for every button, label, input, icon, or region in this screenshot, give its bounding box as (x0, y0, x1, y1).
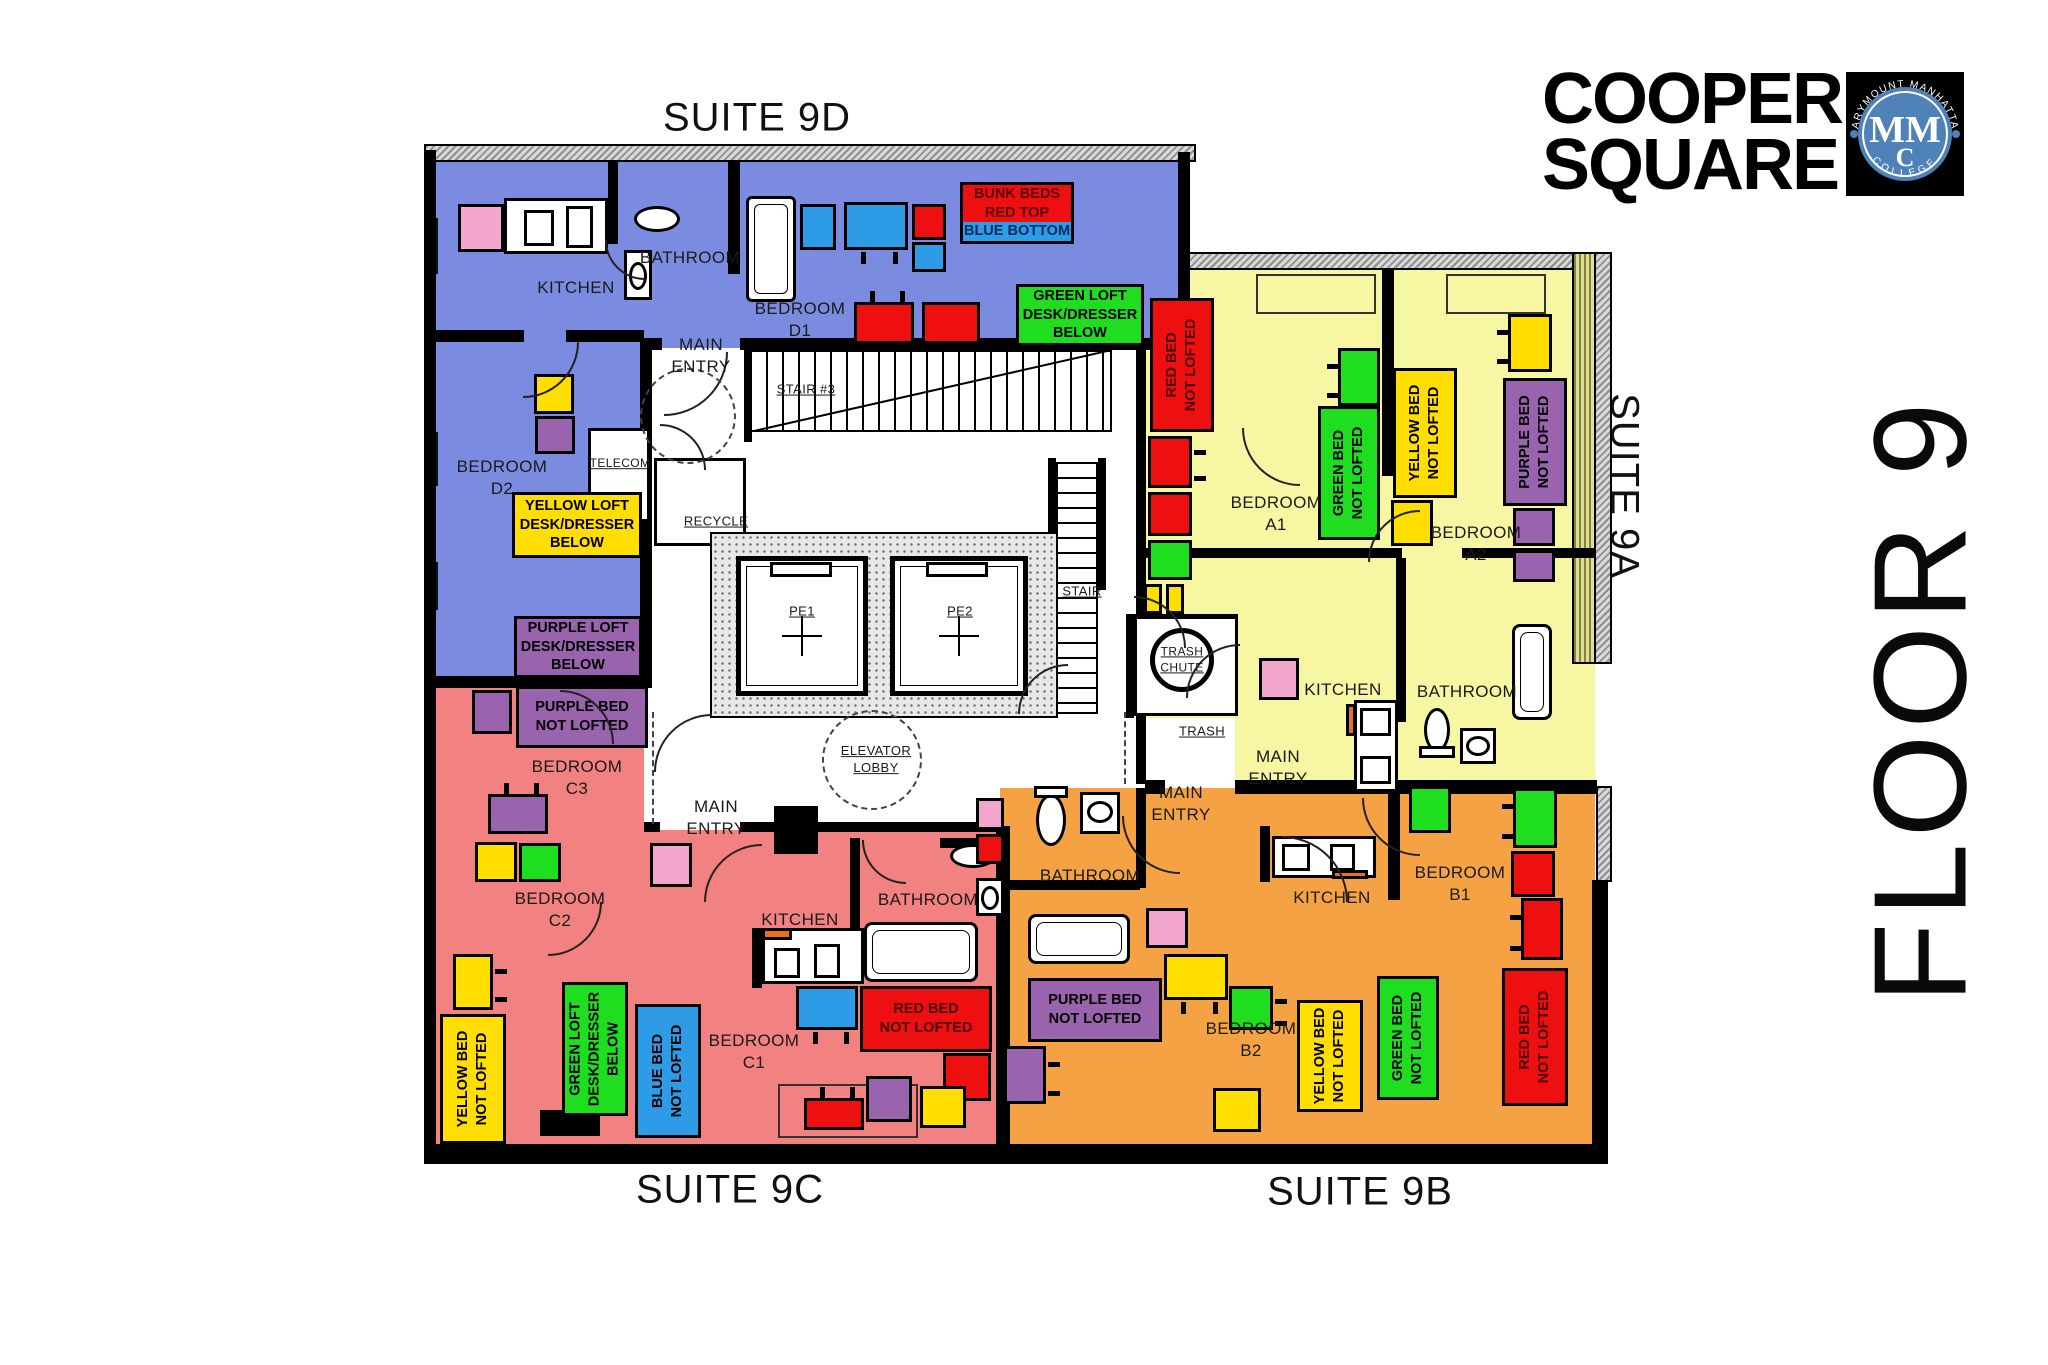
counter-square (814, 944, 840, 978)
room-label-line: BEDROOM (532, 756, 623, 778)
kitchen-9a-label: KITCHEN (1304, 679, 1381, 701)
room-label-line: KITCHEN (1293, 887, 1370, 909)
table-leg-icon (893, 252, 898, 264)
bed-label-line: BLUE BED (649, 1007, 668, 1135)
kitchen-9c-label: KITCHEN (761, 909, 838, 931)
entry-turning-circle-9d (640, 368, 736, 464)
room-label-line: A1 (1231, 514, 1322, 536)
shower-9d (746, 196, 796, 302)
purple-loft-d2: PURPLE LOFTDESK/DRESSERBELOW (514, 616, 642, 678)
table-leg-icon (495, 969, 507, 974)
kitchen-9d-label: KITCHEN (537, 277, 614, 299)
red-bed-a1: RED BEDNOT LOFTED (1150, 298, 1214, 432)
bed-label-line: YELLOW BED (1311, 1003, 1330, 1109)
red-desk-d1 (922, 302, 980, 344)
vertical-text-wrap: RED BEDNOT LOFTED (1516, 971, 1554, 1103)
room-label-line: KITCHEN (537, 277, 614, 299)
room-label-line: A2 (1431, 544, 1522, 566)
bed-label-line: NOT LOFTED (1049, 1010, 1142, 1029)
toilet-tank-9b (1034, 786, 1068, 798)
room-label-line: MAIN (686, 796, 745, 818)
red-desk-d1 (854, 302, 914, 344)
bed-label-line: DESK/DRESSER (1023, 306, 1137, 325)
trash-label: TRASH (1179, 724, 1225, 741)
bedroom-b2-label: BEDROOMB2 (1206, 1018, 1297, 1062)
bed-label-line: NOT LOFTED (668, 1007, 687, 1135)
room-label-line: LOBBY (841, 760, 911, 777)
room-label-line: C1 (709, 1052, 800, 1074)
bunk-beds-label-bottom: BLUE BOTTOM (963, 222, 1071, 241)
red-desk-a1 (1148, 436, 1192, 488)
vertical-text-wrap: PURPLE BEDNOT LOFTED (1516, 381, 1554, 503)
fixture-inner-line (1036, 922, 1122, 956)
bedroom-c3-label: BEDROOMC3 (532, 756, 623, 800)
yellow-bed-b2: YELLOW BEDNOT LOFTED (1297, 1000, 1363, 1112)
exterior-wall (1594, 252, 1612, 664)
room-label-line: CHUTE (1160, 660, 1203, 676)
bunk-red-d1 (912, 204, 946, 240)
blue-desk-d1 (844, 202, 908, 250)
yellow-square-c2 (475, 842, 517, 882)
green-bed-a1: GREEN BEDNOT LOFTED (1318, 406, 1380, 540)
table-leg-icon (813, 1032, 818, 1044)
bed-label-line: RED TOP (985, 204, 1049, 223)
suite-9b-title: SUITE 9B (1267, 1170, 1453, 1215)
room-label-line: MAIN (1248, 746, 1307, 768)
room-label-line: STAIR (1062, 584, 1101, 601)
toilet-base-9a (1419, 746, 1455, 758)
bedroom-c2-label: BEDROOMC2 (515, 888, 606, 932)
wall (1592, 880, 1608, 1148)
seal-monogram-c: C (1896, 143, 1915, 172)
red-square-b1 (1511, 851, 1555, 897)
green-bed-b1: GREEN BEDNOT LOFTED (1377, 976, 1439, 1100)
table-leg-icon (1194, 476, 1206, 481)
table-leg-icon (1502, 834, 1514, 839)
wall (850, 838, 860, 934)
table-leg-icon (1213, 1002, 1218, 1014)
bed-label-line: BLUE BOTTOM (964, 222, 1070, 241)
main-entry-9a-label: MAINENTRY (1248, 746, 1307, 790)
red-desk-b1 (1521, 898, 1563, 960)
red-bunk-c1 (804, 1098, 864, 1130)
room-label-line: MAIN (1151, 782, 1210, 804)
kitchen-9b-label: KITCHEN (1293, 887, 1370, 909)
recycle-label: RECYCLE (684, 514, 748, 531)
suite-9d-title: SUITE 9D (663, 96, 851, 141)
wall (1260, 826, 1270, 882)
room-label-line: TELECOM (590, 456, 651, 472)
room-label-line: TRASH (1160, 644, 1203, 660)
bed-label-line: NOT LOFTED (1330, 1003, 1349, 1109)
bed-label-line: NOT LOFTED (1182, 301, 1201, 429)
room-label-line: D2 (457, 478, 548, 500)
wall (1098, 458, 1106, 590)
table-leg-icon (1510, 915, 1522, 920)
wall (428, 330, 524, 342)
main-entry-9b-label: MAINENTRY (1151, 782, 1210, 826)
pink-square-b2 (1146, 908, 1188, 948)
counter-square (566, 206, 593, 248)
bed-label-line: DESK/DRESSER (520, 516, 634, 535)
sink-basin-9b (1087, 801, 1113, 823)
wall (744, 344, 752, 442)
table-leg-icon (850, 1087, 855, 1099)
wall (566, 330, 644, 342)
bedroom-b1-label: BEDROOMB1 (1415, 862, 1506, 906)
exterior-wall (1572, 252, 1596, 664)
bedroom-a1-label: BEDROOMA1 (1231, 492, 1322, 536)
purple-bed-b2: PURPLE BEDNOT LOFTED (1028, 978, 1162, 1042)
bed-label-line: NOT LOFTED (1408, 979, 1427, 1097)
vertical-text-wrap: YELLOW BEDNOT LOFTED (454, 1017, 492, 1141)
bathroom-9d-label: BATHROOM (640, 247, 740, 269)
bed-label-line: BELOW (550, 534, 604, 553)
counter-square (1360, 708, 1391, 736)
room-label-line: BATHROOM (1040, 865, 1140, 887)
table-leg-icon (1327, 364, 1339, 369)
elevator-crosshair-icon (958, 616, 960, 656)
room-label-line: ENTRY (686, 818, 745, 840)
table-leg-icon (870, 291, 875, 303)
room-label-line: D1 (755, 320, 846, 342)
room-label-line: ENTRY (1248, 768, 1307, 790)
mmc-college-seal: MARYMOUNT MANHATTAN COLLEGE MM C (1846, 72, 1964, 196)
hoist-beam (770, 562, 832, 577)
vertical-text-wrap: RED BEDNOT LOFTED (1163, 301, 1201, 429)
room-label-line: MAIN (671, 334, 730, 356)
wall (424, 1144, 1608, 1164)
bed-label-line: YELLOW BED (1406, 371, 1425, 495)
bed-label-line: NOT LOFTED (1535, 381, 1554, 503)
table-leg-icon (1502, 804, 1514, 809)
vertical-text-wrap: GREEN BEDNOT LOFTED (1389, 979, 1427, 1097)
bed-label-line: BUNK BEDS (974, 185, 1060, 204)
bed-label-line: RED BED (893, 1000, 958, 1019)
table-leg-icon (1510, 946, 1522, 951)
vertical-text-wrap: YELLOW BEDNOT LOFTED (1311, 1003, 1349, 1109)
table-leg-icon (495, 997, 507, 1002)
bed-label-line: BELOW (551, 656, 605, 675)
table-leg-icon (1181, 1002, 1186, 1014)
room-label-line: BEDROOM (755, 298, 846, 320)
room-label-line: RECYCLE (684, 514, 748, 531)
bedroom-a2-label: BEDROOMA2 (1431, 522, 1522, 566)
logo-line-1: COOPER (1542, 66, 1842, 132)
wall (424, 150, 436, 695)
room-label-line: C2 (515, 910, 606, 932)
blue-bed-c1: BLUE BEDNOT LOFTED (635, 1004, 701, 1138)
stove-accent-9a (1346, 704, 1356, 736)
bed-label-line: GREEN LOFT (1033, 287, 1126, 306)
green-square-c2 (519, 843, 561, 882)
bed-label-line: DESK/DRESSER (586, 985, 605, 1113)
yellow-desk-c2 (453, 954, 493, 1010)
elevator-lobby-label: ELEVATORLOBBY (841, 743, 911, 777)
room-label-line: STAIR #3 (777, 382, 836, 399)
bed-label-line: BELOW (1053, 324, 1107, 343)
table-leg-icon (861, 252, 866, 264)
fixture-inner-line (872, 930, 970, 974)
trash-chute-label: TRASHCHUTE (1160, 644, 1203, 675)
bed-label-line: NOT LOFTED (1425, 371, 1444, 495)
table-leg-icon (1497, 359, 1509, 364)
purple-desk-c3 (472, 690, 512, 734)
room-label-line: BEDROOM (709, 1030, 800, 1052)
fixture-inner-line (1520, 632, 1544, 712)
room-label-line: B1 (1415, 884, 1506, 906)
counter-square (524, 210, 554, 246)
tub-9c (864, 922, 978, 982)
purple-desk-d2 (535, 416, 575, 454)
room-label-line: BATHROOM (878, 889, 978, 911)
elevator-crosshair-icon (801, 616, 803, 656)
table-leg-icon (844, 1032, 849, 1044)
table-leg-icon (1275, 999, 1287, 1004)
suite-9c-title: SUITE 9C (636, 1168, 824, 1213)
room-label-line: BEDROOM (1206, 1018, 1297, 1040)
vertical-text-wrap: GREEN BEDNOT LOFTED (1330, 409, 1368, 537)
room-label-line: BATHROOM (640, 247, 740, 269)
yellow-bed-c2: YELLOW BEDNOT LOFTED (440, 1014, 506, 1144)
wall (774, 806, 818, 854)
stair-east-label: STAIR (1062, 584, 1101, 601)
tub-9b (1028, 914, 1130, 964)
green-desk-a1 (1338, 348, 1380, 406)
bed-label-line: GREEN LOFT (567, 985, 586, 1113)
purple-desk-b2 (1004, 1046, 1046, 1104)
vertical-text-wrap: GREEN LOFTDESK/DRESSERBELOW (567, 985, 624, 1113)
room-label-line: BEDROOM (515, 888, 606, 910)
bedroom-d2-label: BEDROOMD2 (457, 456, 548, 500)
bunk-beds-label: BUNK BEDSRED TOPBLUE BOTTOM (960, 182, 1074, 244)
room-label-line: PE1 (789, 604, 815, 621)
room-label-line: C3 (532, 778, 623, 800)
lobby-dash-left (652, 712, 654, 824)
red-square-a1 (1148, 492, 1192, 536)
logo-line-2: SQUARE (1542, 132, 1842, 198)
table-leg-icon (504, 783, 509, 795)
counter-square (1360, 756, 1391, 784)
yellow-bed-a2: YELLOW BEDNOT LOFTED (1393, 368, 1457, 498)
main-entry-9d-label: MAINENTRY (671, 334, 730, 378)
room-label-line: ENTRY (671, 356, 730, 378)
green-loft-c1: GREEN LOFTDESK/DRESSERBELOW (562, 982, 628, 1116)
table-leg-icon (1048, 1062, 1060, 1067)
bed-label-line: YELLOW BED (454, 1017, 473, 1141)
table-leg-icon (900, 291, 905, 303)
yellow-desk-a2 (1508, 314, 1552, 372)
pink-desk-9d (458, 204, 504, 252)
toilet-9b (1036, 794, 1066, 846)
green-loft-d1: GREEN LOFTDESK/DRESSERBELOW (1016, 284, 1144, 346)
pink-square-9c (650, 843, 692, 887)
bed-label-line: GREEN BED (1389, 979, 1408, 1097)
room-label-line: KITCHEN (1304, 679, 1381, 701)
room-label-line: BEDROOM (457, 456, 548, 478)
vertical-text-wrap: YELLOW BEDNOT LOFTED (1406, 371, 1444, 495)
room-label-line: ENTRY (1151, 804, 1210, 826)
room-label-line: TRASH (1179, 724, 1225, 741)
table-leg-icon (820, 1087, 825, 1099)
room-label-line: BEDROOM (1231, 492, 1322, 514)
wall (752, 928, 762, 988)
bed-label-line: BELOW (604, 985, 623, 1113)
table-leg-icon (1048, 1091, 1060, 1096)
bed-label-line: DESK/DRESSER (521, 638, 635, 657)
room-label-line: BEDROOM (1431, 522, 1522, 544)
room-label-line: PE2 (947, 604, 973, 621)
pink-square-9a (1259, 658, 1299, 700)
bathroom-9b-label: BATHROOM (1040, 865, 1140, 887)
bathroom-9c-label: BATHROOM (878, 889, 978, 911)
pink-square-c-bath (976, 798, 1004, 830)
tub-9a (1512, 624, 1552, 720)
bedroom-c1-label: BEDROOMC1 (709, 1030, 800, 1074)
cooper-square-logo: COOPER SQUARE (1542, 66, 1842, 198)
bunk-blue-d1 (912, 242, 946, 272)
bed-label-line: NOT LOFTED (1535, 971, 1554, 1103)
bed-label-line: NOT LOFTED (473, 1017, 492, 1141)
pe1-label: PE1 (789, 604, 815, 621)
red-bed-c1: RED BEDNOT LOFTED (860, 986, 992, 1052)
pe2-label: PE2 (947, 604, 973, 621)
stair-3-label: STAIR #3 (777, 382, 836, 399)
blue-desk-c1 (796, 986, 858, 1030)
yellow-desk-b2 (1164, 954, 1228, 1000)
purple-bed-a2: PURPLE BEDNOT LOFTED (1503, 378, 1567, 506)
floor-plan-canvas: SUITE 9D SUITE 9A SUITE 9C SUITE 9B FLOO… (0, 0, 2048, 1365)
bed-label-line: GREEN BED (1330, 409, 1349, 537)
green-square-a1 (1148, 540, 1192, 580)
yellow-square-c1 (920, 1086, 966, 1128)
wall (608, 162, 618, 244)
bed-label-line: PURPLE LOFT (528, 619, 629, 638)
red-bed-b1: RED BEDNOT LOFTED (1502, 968, 1568, 1106)
exterior-wall (1596, 786, 1612, 882)
bed-label-line: PURPLE BED (1516, 381, 1535, 503)
bedroom-d1-label: BEDROOMD1 (755, 298, 846, 342)
bed-label-line: RED BED (1516, 971, 1535, 1103)
table-leg-icon (1497, 330, 1509, 335)
hoist-beam (926, 562, 988, 577)
wall (424, 686, 436, 1158)
room-label-line: KITCHEN (761, 909, 838, 931)
lobby-dash-right (1124, 712, 1126, 784)
room-label-line: BATHROOM (1417, 681, 1517, 703)
floor-9-title: FLOOR 9 (1845, 397, 1996, 1004)
telecom-label: TELECOM (590, 456, 651, 472)
counter-square (774, 948, 800, 978)
room-label-line: BEDROOM (1415, 862, 1506, 884)
bed-label-line: RED BED (1163, 301, 1182, 429)
bathroom-9a-label: BATHROOM (1417, 681, 1517, 703)
table-leg-icon (1194, 450, 1206, 455)
table-leg-icon (1327, 393, 1339, 398)
bed-outline-a1 (1256, 274, 1376, 314)
sink-basin-9a (1466, 736, 1490, 756)
purple-square-c1 (866, 1076, 912, 1122)
room-label-line: ELEVATOR (841, 743, 911, 760)
blue-desk-d1 (800, 204, 836, 250)
red-square-c-bath (976, 834, 1004, 864)
wall (1126, 618, 1134, 718)
bed-label-line: NOT LOFTED (880, 1019, 973, 1038)
exterior-wall (424, 144, 1196, 162)
fixture-inner-line (754, 204, 788, 294)
wall (1136, 348, 1146, 784)
wall (1396, 558, 1406, 722)
sink-basin-9c (981, 886, 999, 910)
yellow-square-b2 (1213, 1088, 1261, 1132)
room-label-line: B2 (1206, 1040, 1297, 1062)
main-entry-9c-label: MAINENTRY (686, 796, 745, 840)
green-desk-b1 (1513, 788, 1557, 848)
bed-outline-a2 (1446, 274, 1546, 314)
yellow-loft-d2: YELLOW LOFTDESK/DRESSERBELOW (512, 492, 642, 558)
vertical-text-wrap: BLUE BEDNOT LOFTED (649, 1007, 687, 1135)
bed-label-line: NOT LOFTED (1349, 409, 1368, 537)
bunk-beds-label-top: BUNK BEDSRED TOP (963, 185, 1071, 223)
bed-label-line: PURPLE BED (1048, 991, 1141, 1010)
toilet-9d (634, 206, 680, 232)
